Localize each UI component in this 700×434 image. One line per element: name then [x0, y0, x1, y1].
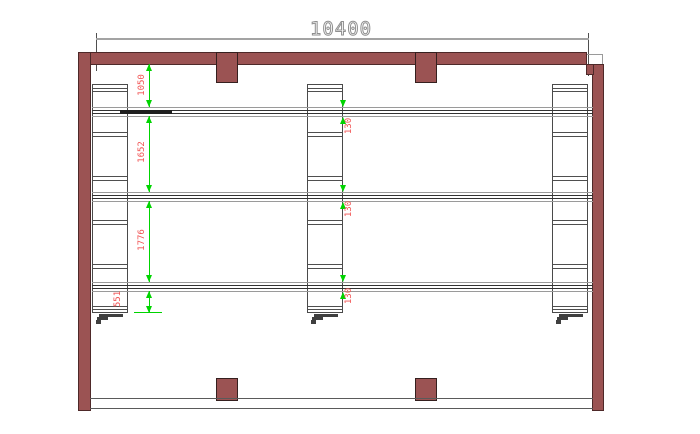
dim-label-1050: 1050 — [137, 68, 147, 102]
dim-arrow-icon — [146, 201, 152, 208]
rack-foot — [314, 314, 338, 317]
wall-left — [78, 52, 91, 411]
wall-right — [592, 64, 604, 411]
dim-line-1776 — [149, 201, 150, 282]
dim-line-1652 — [149, 116, 150, 192]
dim-arrow-icon — [146, 275, 152, 282]
wall-bottom-line-outer — [90, 408, 593, 409]
dim-arrow-icon — [340, 275, 346, 282]
floor-plan-canvas: 10400 1050 1652 1776 551 130 — [0, 0, 700, 434]
dim-arrow-icon — [146, 291, 152, 298]
dim-arrow-icon — [340, 185, 346, 192]
dim-label-rail2-130: 130 — [344, 197, 354, 221]
dim-label-1652: 1652 — [137, 135, 147, 169]
dim-arrow-icon — [146, 306, 152, 313]
dim-arrow-icon — [146, 185, 152, 192]
wall-right-step — [586, 64, 594, 75]
dim-overall-width-label: 10400 — [281, 18, 401, 40]
rail-assembly-3 — [92, 282, 593, 292]
dim-label-551: 551 — [113, 282, 123, 316]
dim-arrow-icon — [340, 100, 346, 107]
column-pier-top-right — [415, 52, 437, 83]
rail-assembly-2 — [92, 192, 593, 202]
rail-splice-plate — [120, 110, 172, 114]
column-pier-top-left — [216, 52, 238, 83]
dim-arrow-icon — [146, 116, 152, 123]
rack-foot — [559, 314, 583, 317]
wall-top — [78, 52, 587, 65]
dim-label-rail3-130: 130 — [344, 284, 354, 308]
dim-label-1776: 1776 — [137, 223, 147, 257]
wall-bottom-line-inner — [90, 398, 593, 399]
dim-label-rail1-130: 130 — [344, 114, 354, 138]
